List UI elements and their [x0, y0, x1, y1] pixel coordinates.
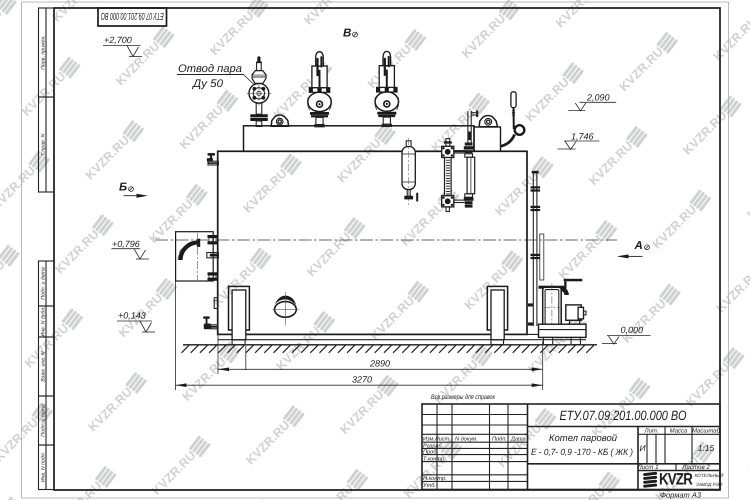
svg-text:ЗАВОД РЭП: ЗАВОД РЭП [696, 482, 723, 487]
svg-text:KVZR: KVZR [659, 471, 693, 489]
svg-text:А: А [634, 240, 643, 252]
svg-text:Котел паровой: Котел паровой [549, 433, 618, 444]
svg-text:Инв. N подл.: Инв. N подл. [41, 452, 47, 482]
svg-text:Разраб.: Разраб. [423, 442, 443, 449]
svg-text:ЕТУ.07.09.201.00.000 ВО: ЕТУ.07.09.201.00.000 ВО [560, 408, 687, 423]
svg-text:ЕТУ.07.09.201.00.000 ВО: ЕТУ.07.09.201.00.000 ВО [101, 10, 164, 21]
svg-text:Б: Б [119, 182, 127, 194]
svg-text:Отвод пара: Отвод пара [178, 63, 242, 75]
svg-text:Е - 0,7- 0,9 -170 - КБ ( ЖК ): Е - 0,7- 0,9 -170 - КБ ( ЖК ) [531, 447, 633, 457]
svg-text:Дата: Дата [510, 437, 526, 443]
svg-text:Все размеры для справок: Все размеры для справок [431, 394, 496, 401]
svg-text:Лист 1: Лист 1 [636, 464, 658, 471]
svg-text:Подп. и дата: Подп. и дата [41, 267, 47, 300]
svg-text:1,746: 1,746 [571, 132, 594, 142]
svg-text:И: И [639, 443, 646, 453]
svg-text:Утб.: Утб. [422, 482, 436, 489]
svg-text:2890: 2890 [369, 359, 390, 369]
svg-text:N докум.: N докум. [455, 436, 478, 443]
svg-text:Масштаб: Масштаб [692, 428, 721, 435]
svg-text:Подп. и дата: Подп. и дата [41, 404, 47, 437]
svg-text:Справ. N: Справ. N [41, 133, 47, 155]
svg-text:Н.контр.: Н.контр. [423, 476, 447, 482]
svg-text:Лит.: Лит. [643, 428, 658, 435]
svg-text:В: В [343, 28, 351, 40]
svg-text:Ду 50: Ду 50 [191, 78, 224, 90]
svg-text:+0,143: +0,143 [118, 311, 146, 321]
svg-text:+0,796: +0,796 [112, 239, 140, 249]
svg-text:Масса: Масса [670, 428, 688, 435]
svg-text:1:15: 1:15 [698, 443, 715, 453]
svg-text:Подп.: Подп. [492, 436, 507, 443]
svg-text:Перв. примен.: Перв. примен. [41, 35, 47, 69]
svg-text:2,090: 2,090 [586, 93, 610, 103]
svg-text:3270: 3270 [352, 374, 372, 384]
svg-text:+2,700: +2,700 [104, 35, 132, 45]
svg-text:Проб.: Проб. [423, 449, 438, 456]
svg-text:Изм.Лист: Изм.Лист [423, 437, 450, 443]
svg-text:Взам. инв. N: Взам. инв. N [41, 351, 47, 381]
svg-text:Инв. N дубл.: Инв. N дубл. [41, 306, 47, 336]
svg-text:Т.контр.: Т.контр. [423, 456, 446, 462]
svg-text:КОТЕЛЬНЫЙ: КОТЕЛЬНЫЙ [695, 472, 725, 478]
svg-text:0,000: 0,000 [621, 325, 644, 335]
svg-text:Формат А3: Формат А3 [660, 491, 702, 500]
